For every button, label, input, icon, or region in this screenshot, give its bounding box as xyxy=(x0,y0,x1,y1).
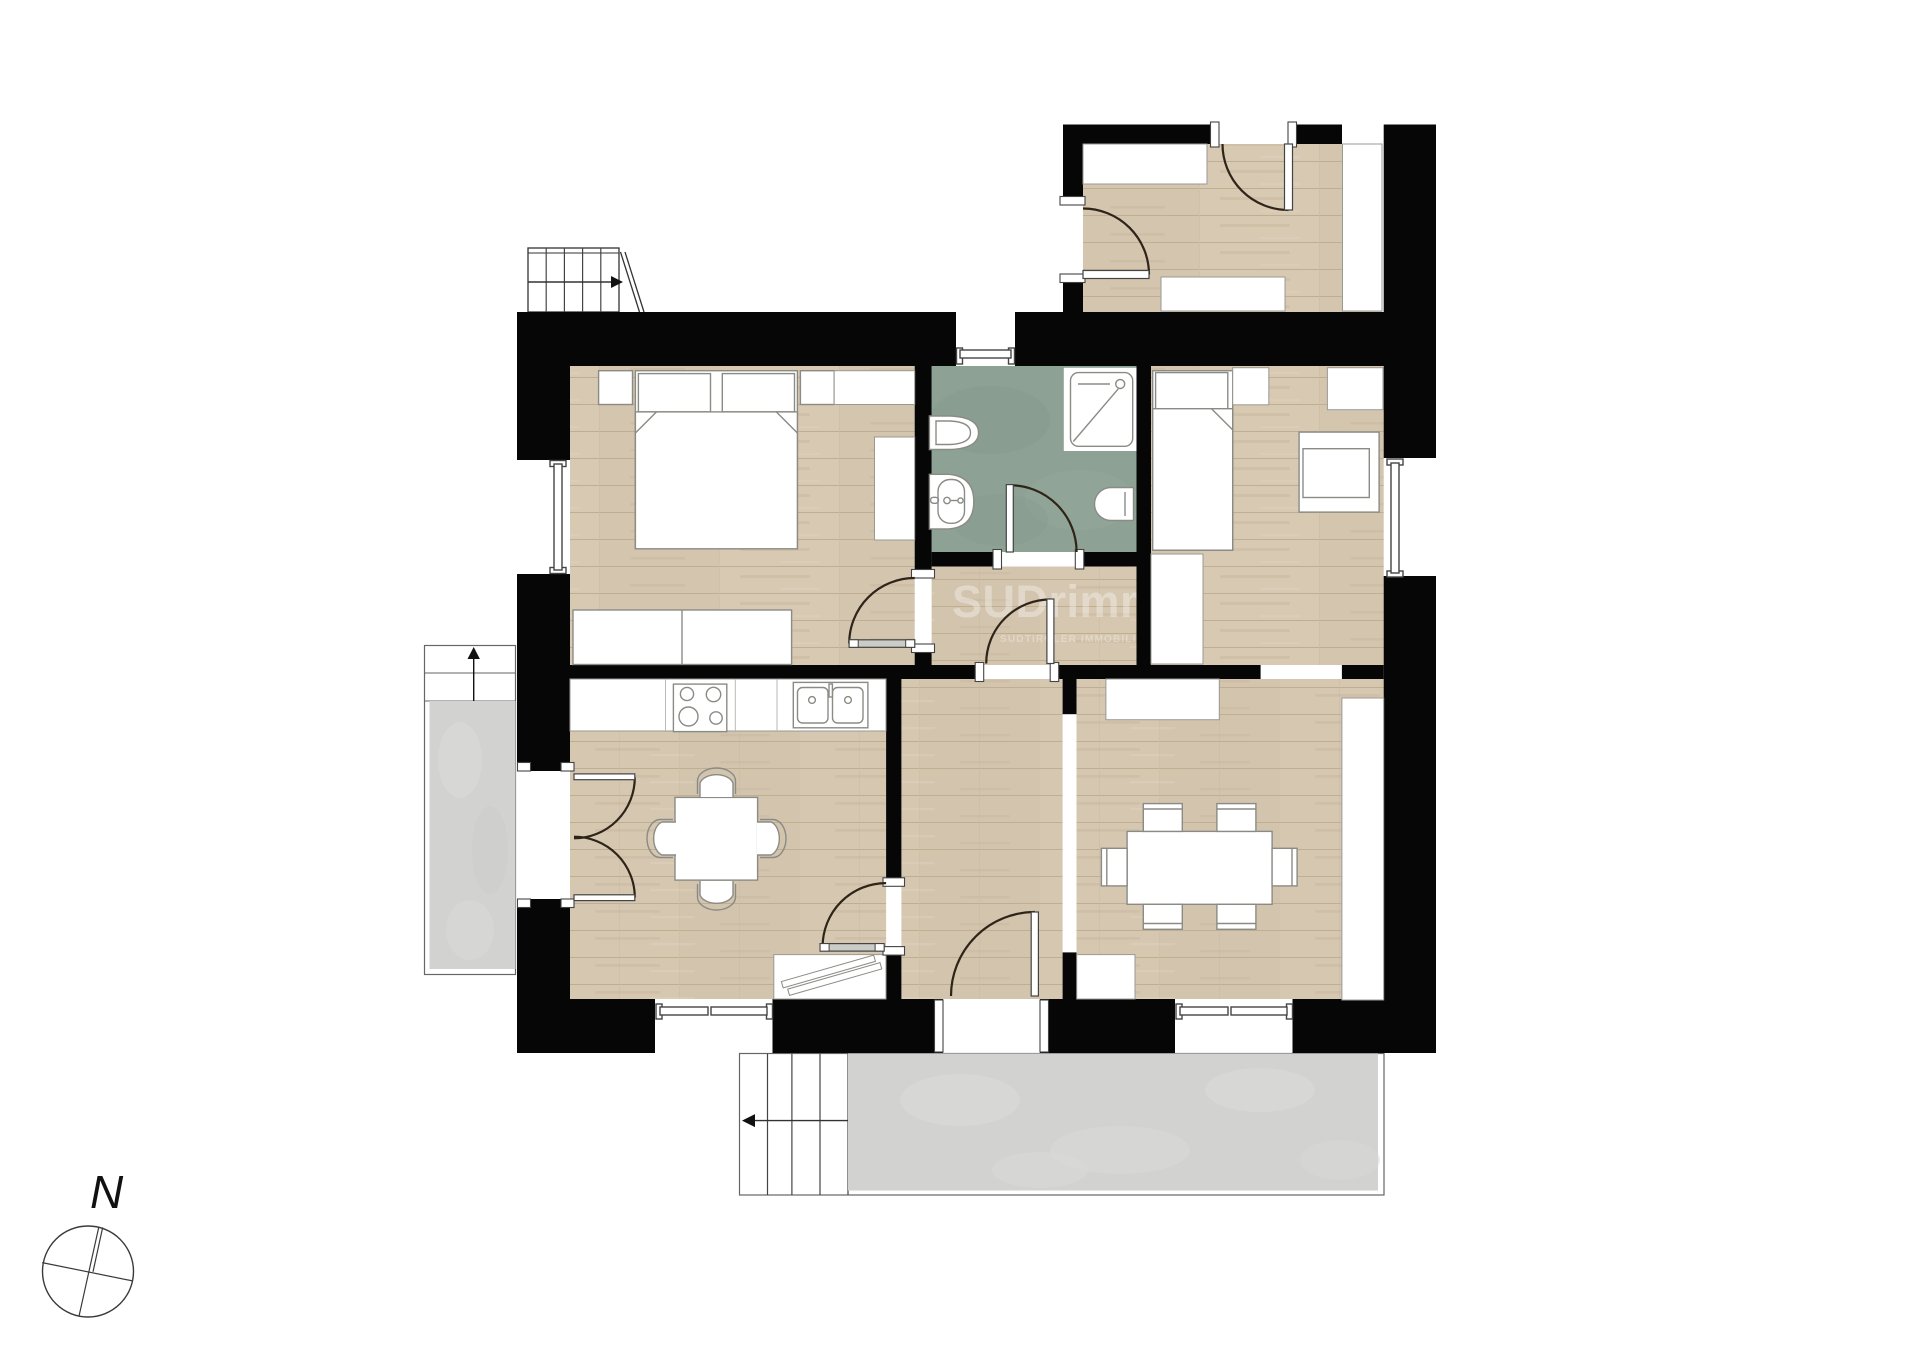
svg-text:N: N xyxy=(90,1166,124,1218)
svg-text:SUDrimm: SUDrimm xyxy=(952,576,1161,627)
svg-text:SUDTIROLER IMMOBILIEN: SUDTIROLER IMMOBILIEN xyxy=(1000,634,1153,645)
